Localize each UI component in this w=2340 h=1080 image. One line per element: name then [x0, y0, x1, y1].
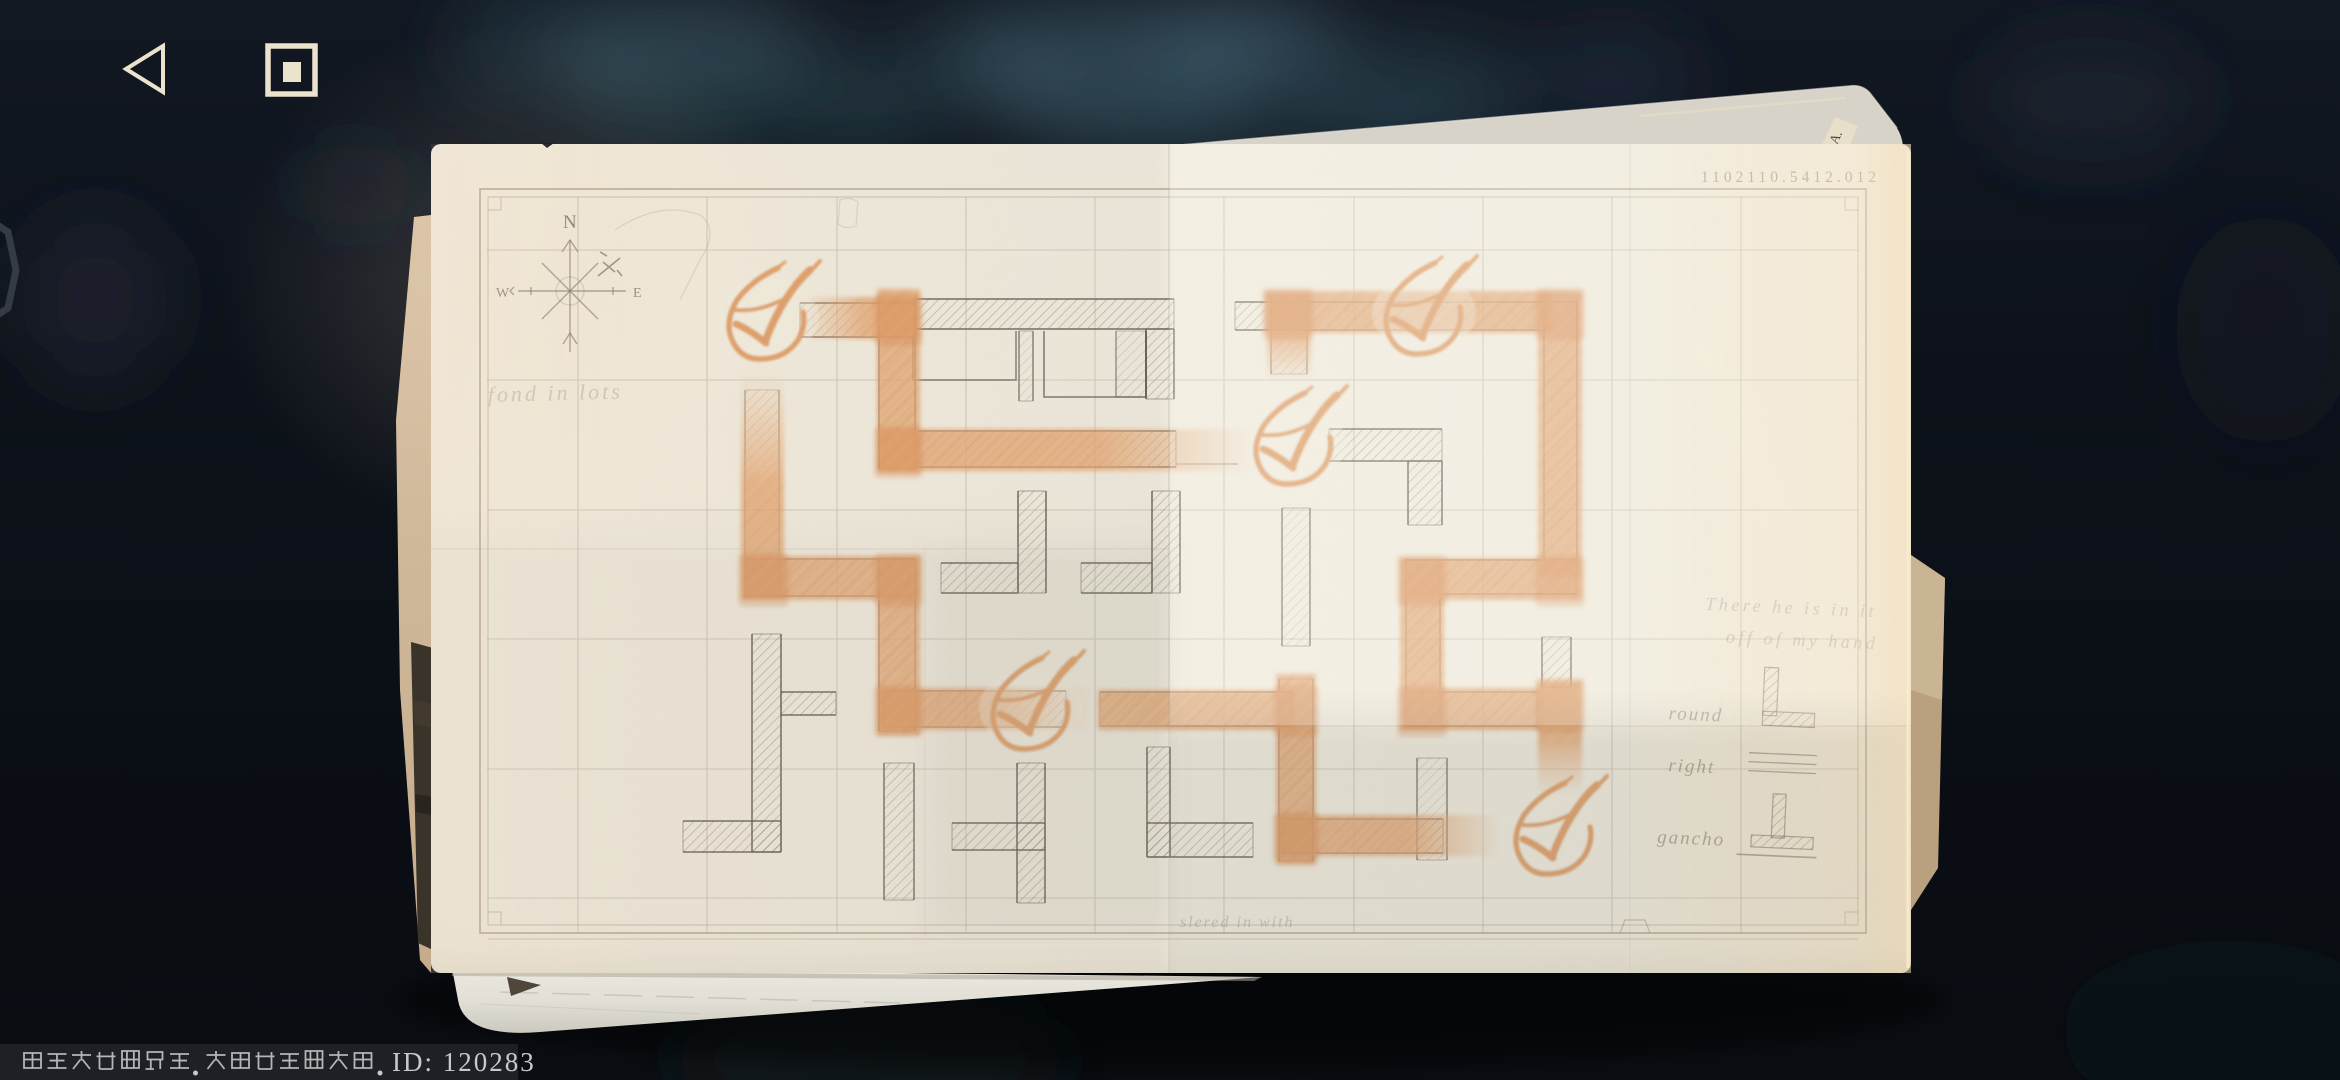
- svg-text:ID: 120283: ID: 120283: [392, 1047, 536, 1077]
